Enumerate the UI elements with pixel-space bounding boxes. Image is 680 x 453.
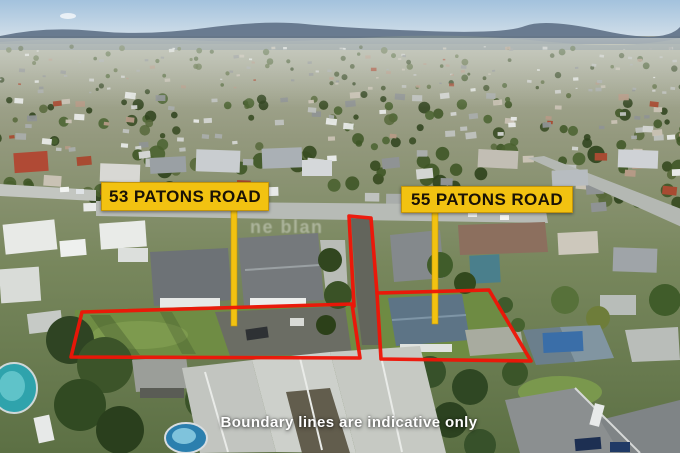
blue-tarp bbox=[543, 331, 584, 353]
property-label-55: 55 PATONS ROAD bbox=[401, 186, 573, 213]
carport-roof bbox=[132, 356, 190, 392]
watermark: ne blan bbox=[250, 217, 324, 238]
disclaimer-text: Boundary lines are indicative only bbox=[204, 414, 494, 431]
red-roof-house bbox=[13, 151, 48, 173]
label-pointer-55 bbox=[432, 208, 438, 324]
aerial-photo: 53 PATONS ROAD 55 PATONS ROAD ne blan Bo… bbox=[0, 0, 680, 453]
haze bbox=[0, 38, 680, 108]
car bbox=[500, 215, 509, 220]
property-label-53: 53 PATONS ROAD bbox=[101, 182, 269, 211]
car bbox=[76, 189, 84, 194]
aerial-scene bbox=[0, 0, 680, 453]
car bbox=[60, 187, 69, 192]
cloud bbox=[60, 13, 76, 19]
